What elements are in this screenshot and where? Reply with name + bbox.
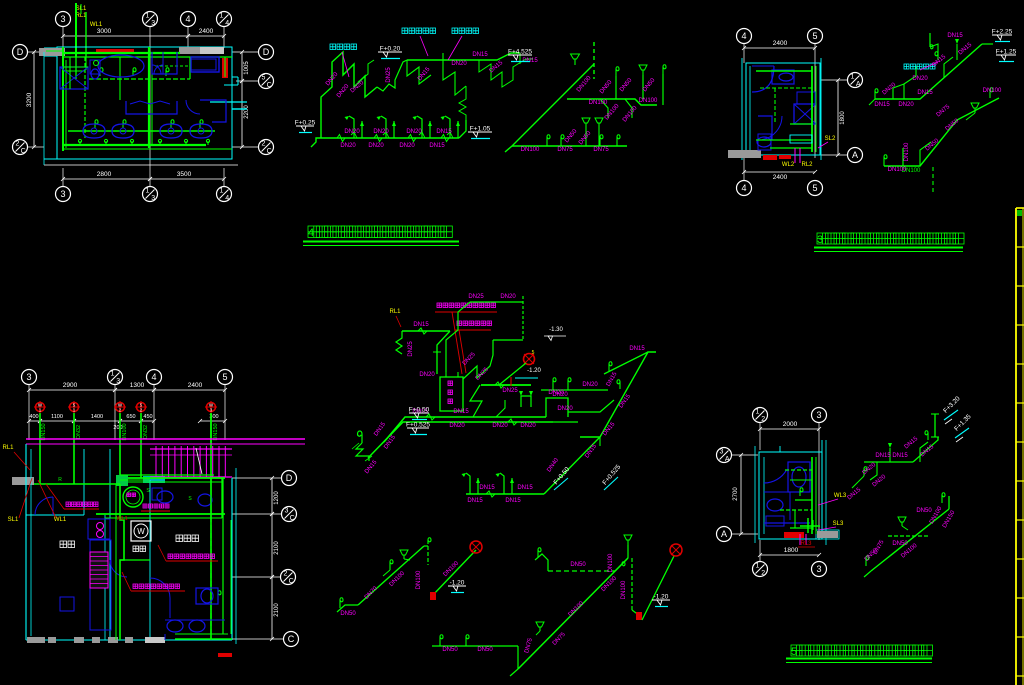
svg-text:D: D: [17, 47, 24, 57]
svg-text:2000: 2000: [783, 421, 798, 428]
svg-text:SL2: SL2: [825, 136, 836, 142]
svg-text:DN100: DN100: [122, 423, 128, 440]
svg-text:F+1.25: F+1.25: [996, 49, 1017, 56]
svg-text:3: 3: [151, 20, 155, 27]
svg-text:SL3: SL3: [833, 521, 844, 527]
svg-text:DN75: DN75: [557, 147, 573, 153]
svg-text:1: 1: [219, 188, 223, 195]
svg-text:F+1.05: F+1.05: [470, 126, 491, 133]
svg-text:3: 3: [284, 508, 288, 515]
svg-text:DN32: DN32: [76, 425, 82, 439]
svg-text:400: 400: [29, 414, 38, 420]
svg-text:3: 3: [816, 410, 821, 420]
svg-text:DN15: DN15: [505, 498, 521, 504]
svg-text:DN20: DN20: [406, 129, 422, 135]
svg-text:DN100: DN100: [416, 570, 422, 589]
svg-text:1300: 1300: [130, 382, 145, 389]
svg-text:5: 5: [812, 183, 817, 193]
svg-text:2: 2: [261, 141, 265, 148]
svg-text:3000: 3000: [97, 28, 112, 35]
svg-text:3: 3: [26, 372, 31, 382]
svg-text:DN25: DN25: [468, 294, 484, 300]
svg-text:DN20: DN20: [399, 143, 415, 149]
svg-text:DN20: DN20: [373, 129, 389, 135]
svg-text:4: 4: [225, 195, 229, 202]
svg-text:DN20: DN20: [912, 76, 928, 82]
svg-text:2700: 2700: [733, 487, 739, 501]
svg-text:A: A: [721, 529, 727, 539]
svg-text:DN15: DN15: [472, 52, 488, 58]
svg-text:DN50: DN50: [477, 647, 493, 653]
svg-text:DN15: DN15: [874, 102, 890, 108]
svg-text:F+0.25: F+0.25: [295, 120, 316, 127]
svg-text:5: 5: [812, 31, 817, 41]
svg-text:2400: 2400: [199, 28, 214, 35]
svg-text:2400: 2400: [188, 382, 203, 389]
svg-text:2800: 2800: [97, 171, 112, 178]
svg-text:RL1: RL1: [389, 309, 401, 315]
svg-text:DN75: DN75: [593, 147, 609, 153]
svg-text:4: 4: [308, 227, 314, 239]
svg-text:1800: 1800: [840, 111, 846, 125]
svg-text:2900: 2900: [63, 382, 78, 389]
svg-text:RL2: RL2: [801, 162, 813, 168]
svg-text:DN15: DN15: [892, 453, 908, 459]
svg-text:3: 3: [151, 195, 155, 202]
svg-text:DN20: DN20: [368, 143, 384, 149]
svg-text:F+4.525: F+4.525: [508, 49, 532, 56]
svg-text:1: 1: [755, 563, 759, 570]
svg-text:DN100: DN100: [888, 167, 907, 173]
svg-text:1: 1: [110, 371, 114, 378]
svg-text:3: 3: [60, 189, 65, 199]
svg-text:DN20: DN20: [520, 423, 536, 429]
svg-text:3200: 3200: [26, 92, 33, 107]
svg-text:DN100: DN100: [521, 147, 540, 153]
svg-text:DN100: DN100: [589, 100, 608, 106]
svg-text:4: 4: [225, 20, 229, 27]
svg-text:3: 3: [60, 14, 65, 24]
svg-text:2400: 2400: [773, 174, 788, 181]
svg-text:450: 450: [143, 414, 152, 420]
svg-text:3: 3: [719, 449, 723, 456]
svg-text:-1.20: -1.20: [450, 580, 465, 587]
svg-text:-1.20: -1.20: [527, 368, 541, 374]
svg-text:F+0.50: F+0.50: [409, 407, 430, 414]
svg-text:1: 1: [145, 188, 149, 195]
svg-text:DN15: DN15: [436, 129, 452, 135]
svg-text:DN15: DN15: [453, 409, 469, 415]
svg-text:DN50: DN50: [442, 647, 458, 653]
svg-text:4: 4: [185, 14, 190, 24]
svg-text:1: 1: [755, 409, 759, 416]
svg-text:DN20: DN20: [419, 372, 435, 378]
svg-text:DN25: DN25: [386, 67, 392, 83]
svg-text:A: A: [852, 150, 858, 160]
svg-text:C: C: [267, 148, 272, 155]
svg-text:DN20: DN20: [344, 129, 360, 135]
svg-text:C: C: [289, 578, 294, 585]
svg-text:-1.30: -1.30: [549, 327, 563, 333]
svg-text:WL1: WL1: [116, 516, 127, 522]
svg-text:DN20: DN20: [557, 406, 573, 412]
svg-text:C: C: [290, 515, 295, 522]
svg-text:2400: 2400: [773, 40, 788, 47]
svg-text:DN15: DN15: [467, 498, 483, 504]
svg-text:C: C: [288, 634, 295, 644]
svg-text:WL3: WL3: [834, 493, 847, 499]
svg-text:DN150: DN150: [213, 423, 219, 440]
svg-text:F+0.525: F+0.525: [406, 422, 430, 429]
svg-text:DN15: DN15: [429, 143, 445, 149]
svg-text:DN15: DN15: [479, 485, 495, 491]
svg-text:3: 3: [116, 378, 120, 385]
svg-text:RL3: RL3: [800, 541, 812, 547]
svg-text:C: C: [267, 82, 272, 89]
svg-text:1: 1: [850, 74, 854, 81]
svg-text:DN15: DN15: [875, 453, 891, 459]
svg-text:DN20: DN20: [340, 143, 356, 149]
svg-text:5: 5: [222, 372, 227, 382]
svg-text:5: 5: [791, 646, 797, 658]
svg-text:1005: 1005: [244, 61, 250, 75]
svg-text:DN20: DN20: [492, 423, 508, 429]
svg-text:4: 4: [741, 31, 746, 41]
svg-text:DN32: DN32: [143, 425, 149, 439]
svg-text:DN15: DN15: [517, 485, 533, 491]
svg-text:W: W: [137, 527, 145, 536]
svg-text:1: 1: [145, 13, 149, 20]
svg-text:DN20: DN20: [898, 102, 914, 108]
svg-text:DN100: DN100: [621, 580, 627, 599]
svg-text:1100: 1100: [51, 414, 63, 420]
svg-text:2: 2: [283, 571, 287, 578]
svg-text:1400: 1400: [91, 414, 103, 420]
svg-text:DN50: DN50: [916, 508, 932, 514]
svg-text:DN100: DN100: [639, 98, 658, 104]
svg-text:R: R: [58, 477, 62, 483]
svg-text:2100: 2100: [274, 603, 280, 617]
svg-text:5: 5: [261, 75, 265, 82]
svg-text:F+0.20: F+0.20: [380, 46, 401, 53]
svg-text:D: D: [263, 47, 270, 57]
svg-text:650: 650: [126, 414, 135, 420]
svg-text:A: A: [725, 456, 730, 463]
svg-text:3: 3: [816, 564, 821, 574]
svg-text:DN50: DN50: [570, 562, 586, 568]
svg-text:DN50: DN50: [340, 611, 356, 617]
svg-text:2200: 2200: [244, 105, 250, 119]
svg-text:DN100: DN100: [904, 142, 910, 161]
svg-text:DN20: DN20: [451, 61, 467, 67]
svg-text:DN20: DN20: [449, 423, 465, 429]
svg-text:DN100: DN100: [608, 553, 614, 572]
svg-text:3500: 3500: [177, 171, 192, 178]
svg-text:5: 5: [532, 350, 535, 356]
svg-text:DN15: DN15: [629, 346, 645, 352]
svg-text:1200: 1200: [274, 491, 280, 505]
svg-text:DN25: DN25: [408, 341, 414, 357]
svg-text:1: 1: [219, 13, 223, 20]
svg-text:DN15: DN15: [917, 90, 933, 96]
svg-text:DN100: DN100: [983, 88, 1002, 94]
svg-text:DN50: DN50: [892, 541, 908, 547]
svg-text:DN20: DN20: [582, 382, 598, 388]
svg-text:A: A: [856, 81, 861, 88]
svg-text:3: 3: [817, 234, 823, 246]
svg-text:SL1: SL1: [8, 517, 19, 523]
svg-text:D: D: [286, 473, 293, 483]
svg-text:1800: 1800: [784, 547, 799, 554]
svg-text:F+2.25: F+2.25: [992, 29, 1013, 36]
svg-text:4: 4: [741, 183, 746, 193]
svg-text:2: 2: [761, 570, 765, 577]
svg-text:-1.20: -1.20: [654, 594, 669, 601]
svg-text:C: C: [21, 148, 26, 155]
svg-text:2: 2: [761, 416, 765, 423]
svg-text:DN20: DN20: [548, 390, 564, 396]
svg-text:WL1: WL1: [90, 22, 103, 28]
svg-text:DN25: DN25: [502, 388, 518, 394]
svg-text:DN15: DN15: [413, 322, 429, 328]
svg-text:DN150: DN150: [41, 423, 47, 440]
svg-text:DN15: DN15: [947, 33, 963, 39]
svg-text:DN20: DN20: [500, 294, 516, 300]
svg-text:2100: 2100: [274, 541, 280, 555]
svg-text:2: 2: [15, 141, 19, 148]
svg-text:WL2: WL2: [782, 162, 795, 168]
svg-text:4: 4: [151, 372, 156, 382]
svg-text:RL1: RL1: [2, 445, 14, 451]
